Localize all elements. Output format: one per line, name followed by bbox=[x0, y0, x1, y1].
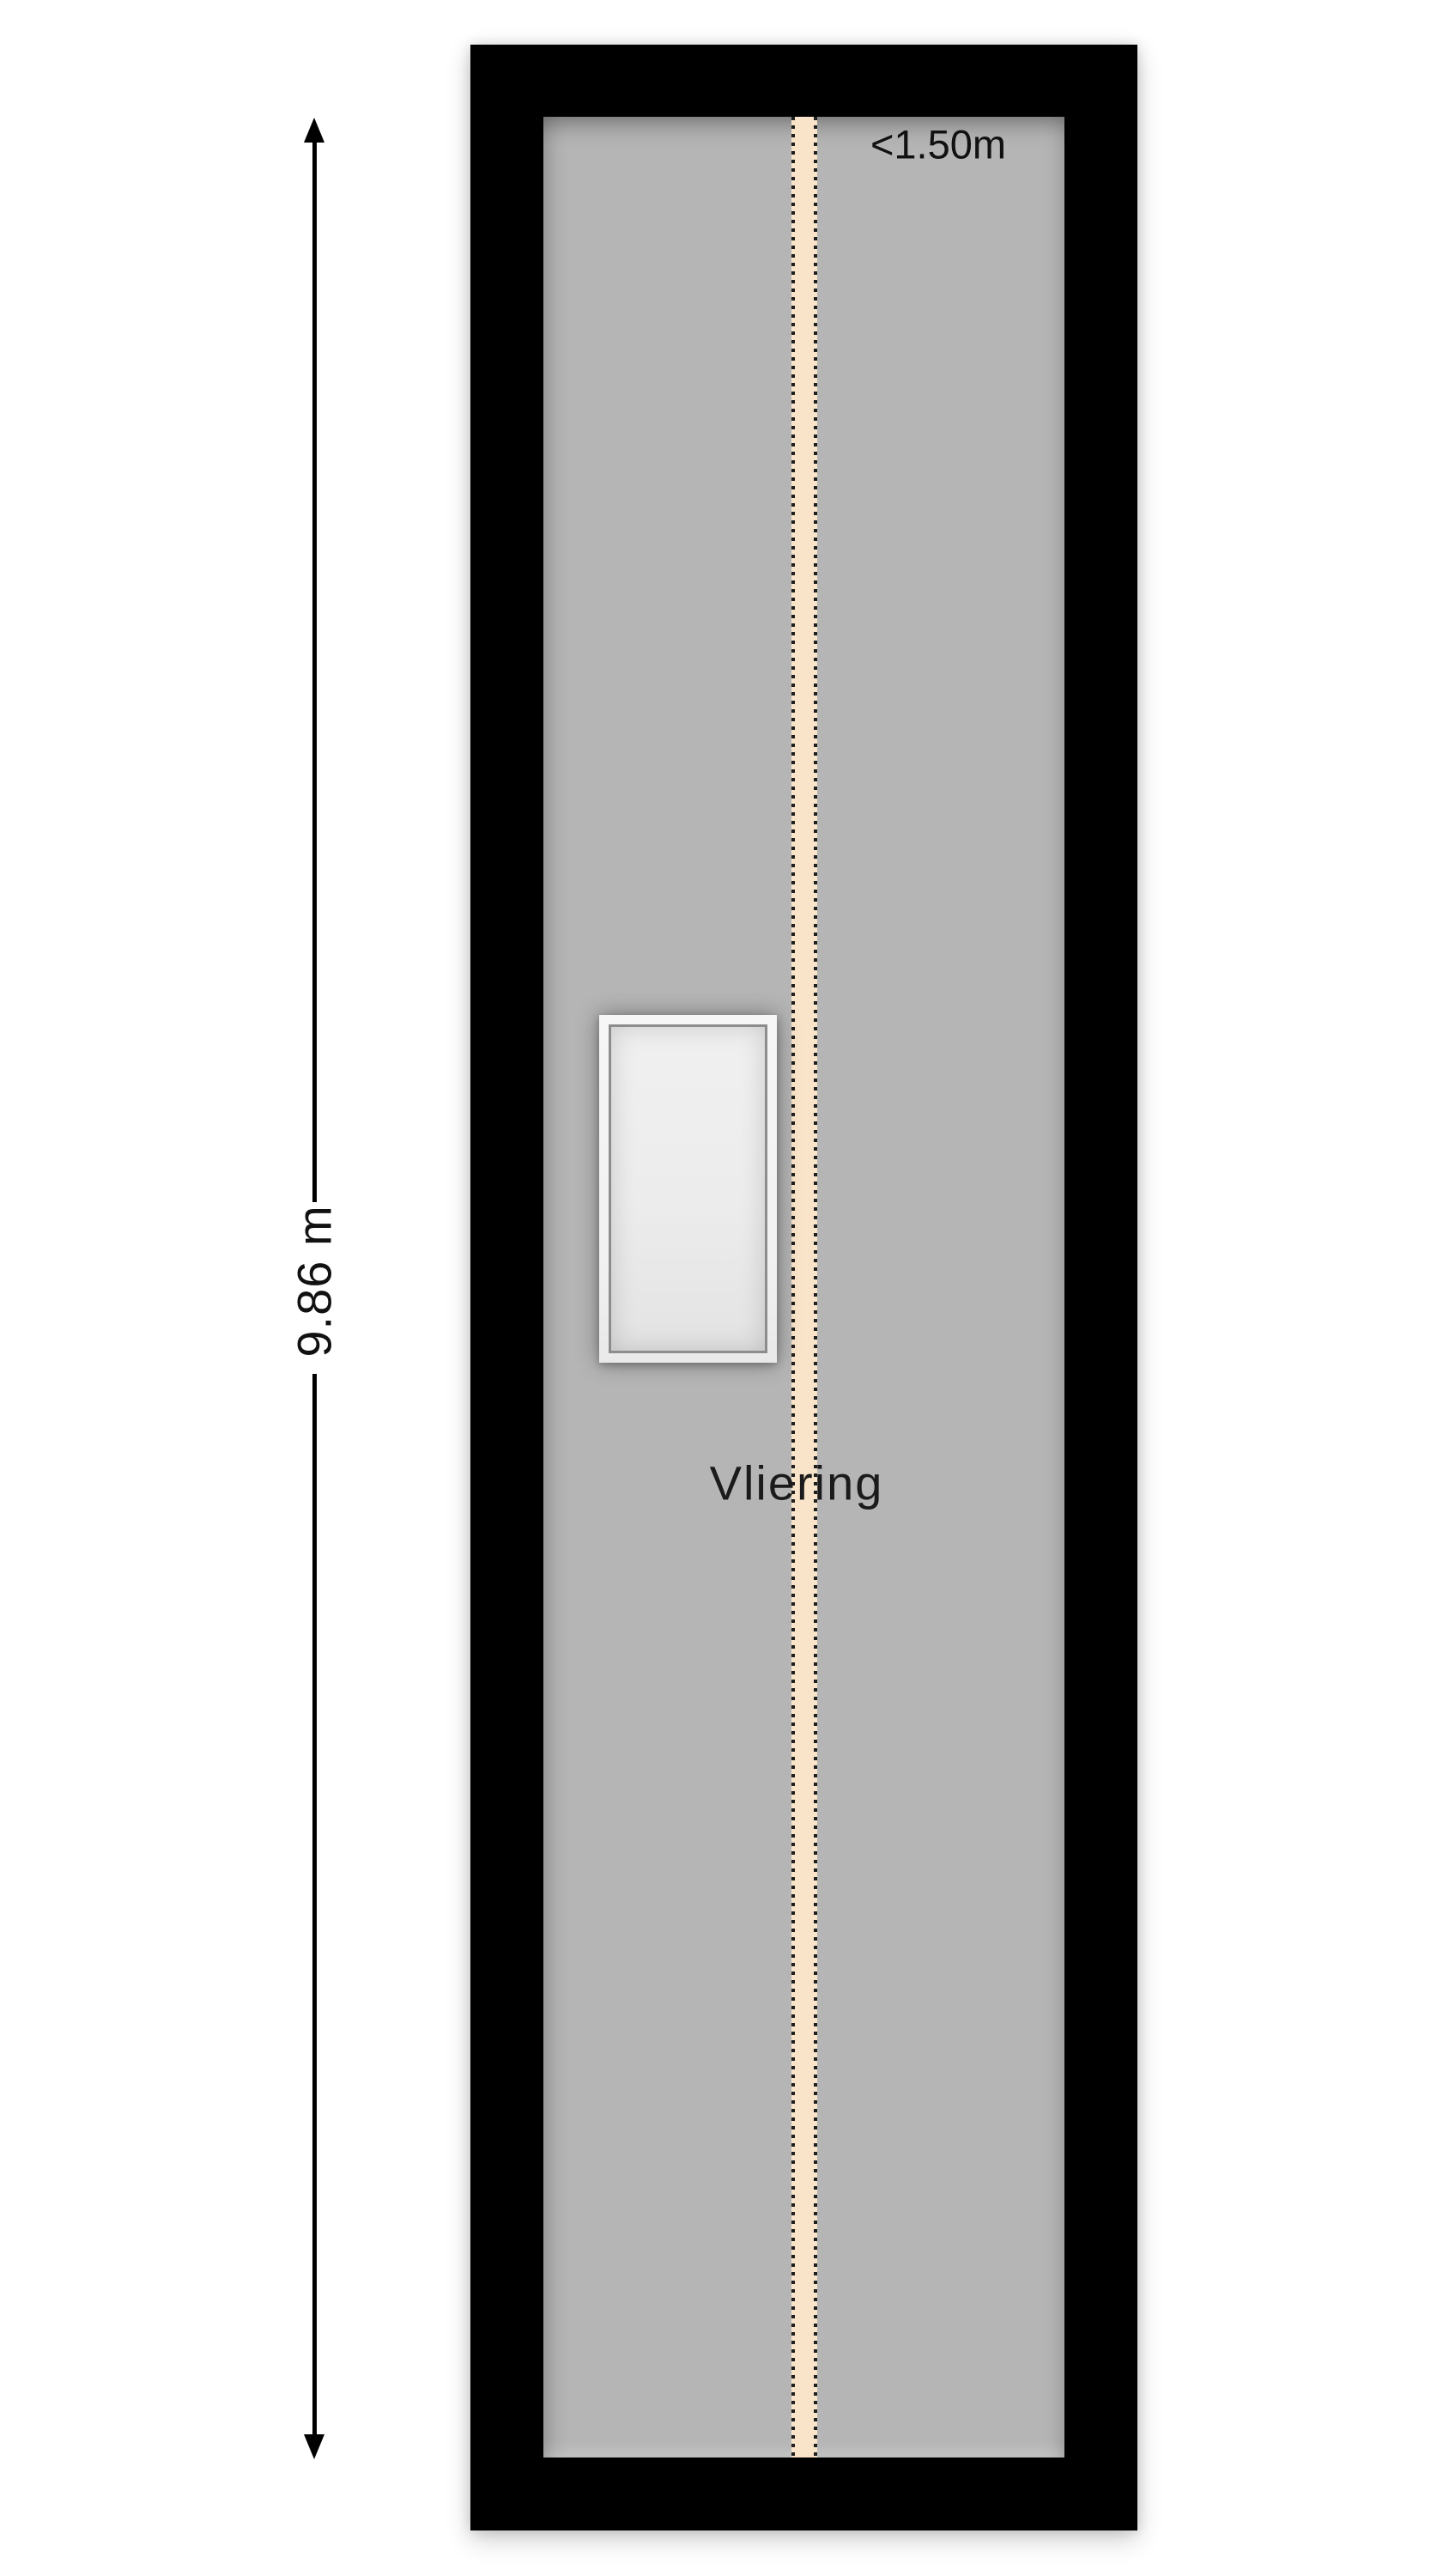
headroom-label: <1.50m bbox=[870, 121, 1006, 168]
dimension-label: 9.86 m bbox=[287, 1205, 343, 1357]
dimension-arrow-down-icon bbox=[304, 2434, 324, 2459]
dimension-line-upper bbox=[312, 143, 317, 1202]
floor-area: <1.50m Vliering bbox=[543, 117, 1064, 2458]
room-wall-outline: <1.50m Vliering bbox=[470, 45, 1137, 2530]
stair-opening-inner bbox=[609, 1024, 767, 1353]
dimension-arrow-up-icon bbox=[304, 118, 324, 143]
headroom-limit-line bbox=[791, 117, 817, 2458]
dimension-line-lower bbox=[312, 1374, 317, 2434]
room-label: Vliering bbox=[710, 1455, 884, 1511]
floorplan-canvas: 9.86 m <1.50m Vliering bbox=[0, 0, 1449, 2576]
stair-opening bbox=[599, 1015, 777, 1363]
